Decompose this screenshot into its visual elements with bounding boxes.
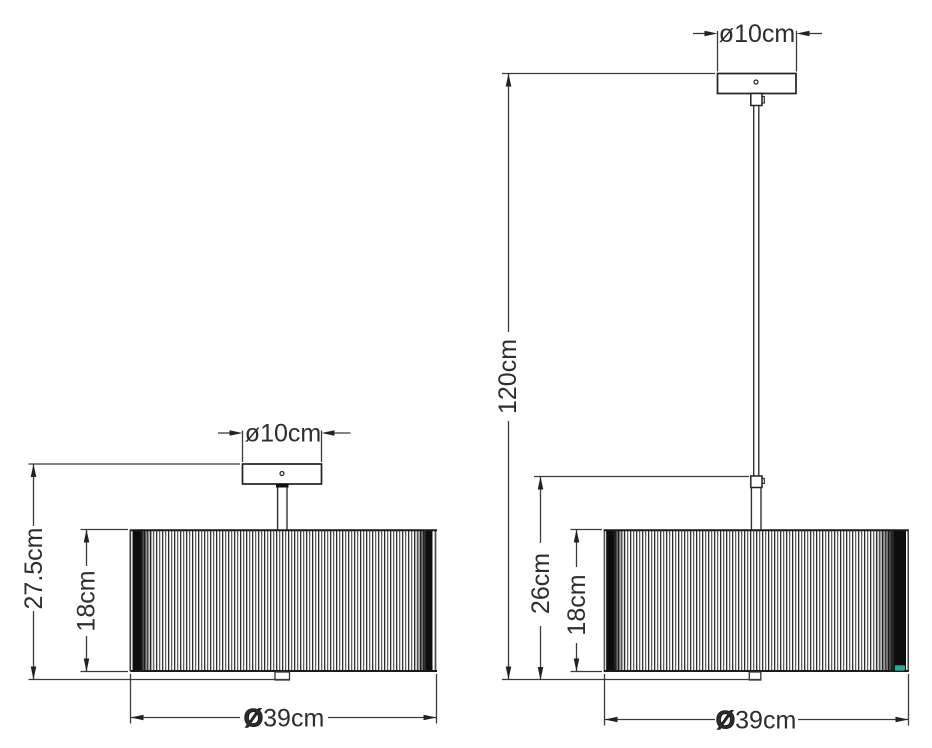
svg-text:ø10cm: ø10cm	[719, 20, 795, 48]
svg-text:27.5cm: 27.5cm	[20, 528, 48, 610]
svg-text:ø10cm: ø10cm	[245, 420, 321, 448]
svg-text:Ø39cm: Ø39cm	[244, 705, 325, 733]
svg-text:18cm: 18cm	[73, 570, 101, 631]
svg-text:Ø39cm: Ø39cm	[716, 707, 797, 735]
svg-text:120cm: 120cm	[494, 339, 522, 414]
svg-text:26cm: 26cm	[527, 553, 555, 614]
svg-text:18cm: 18cm	[563, 574, 591, 635]
